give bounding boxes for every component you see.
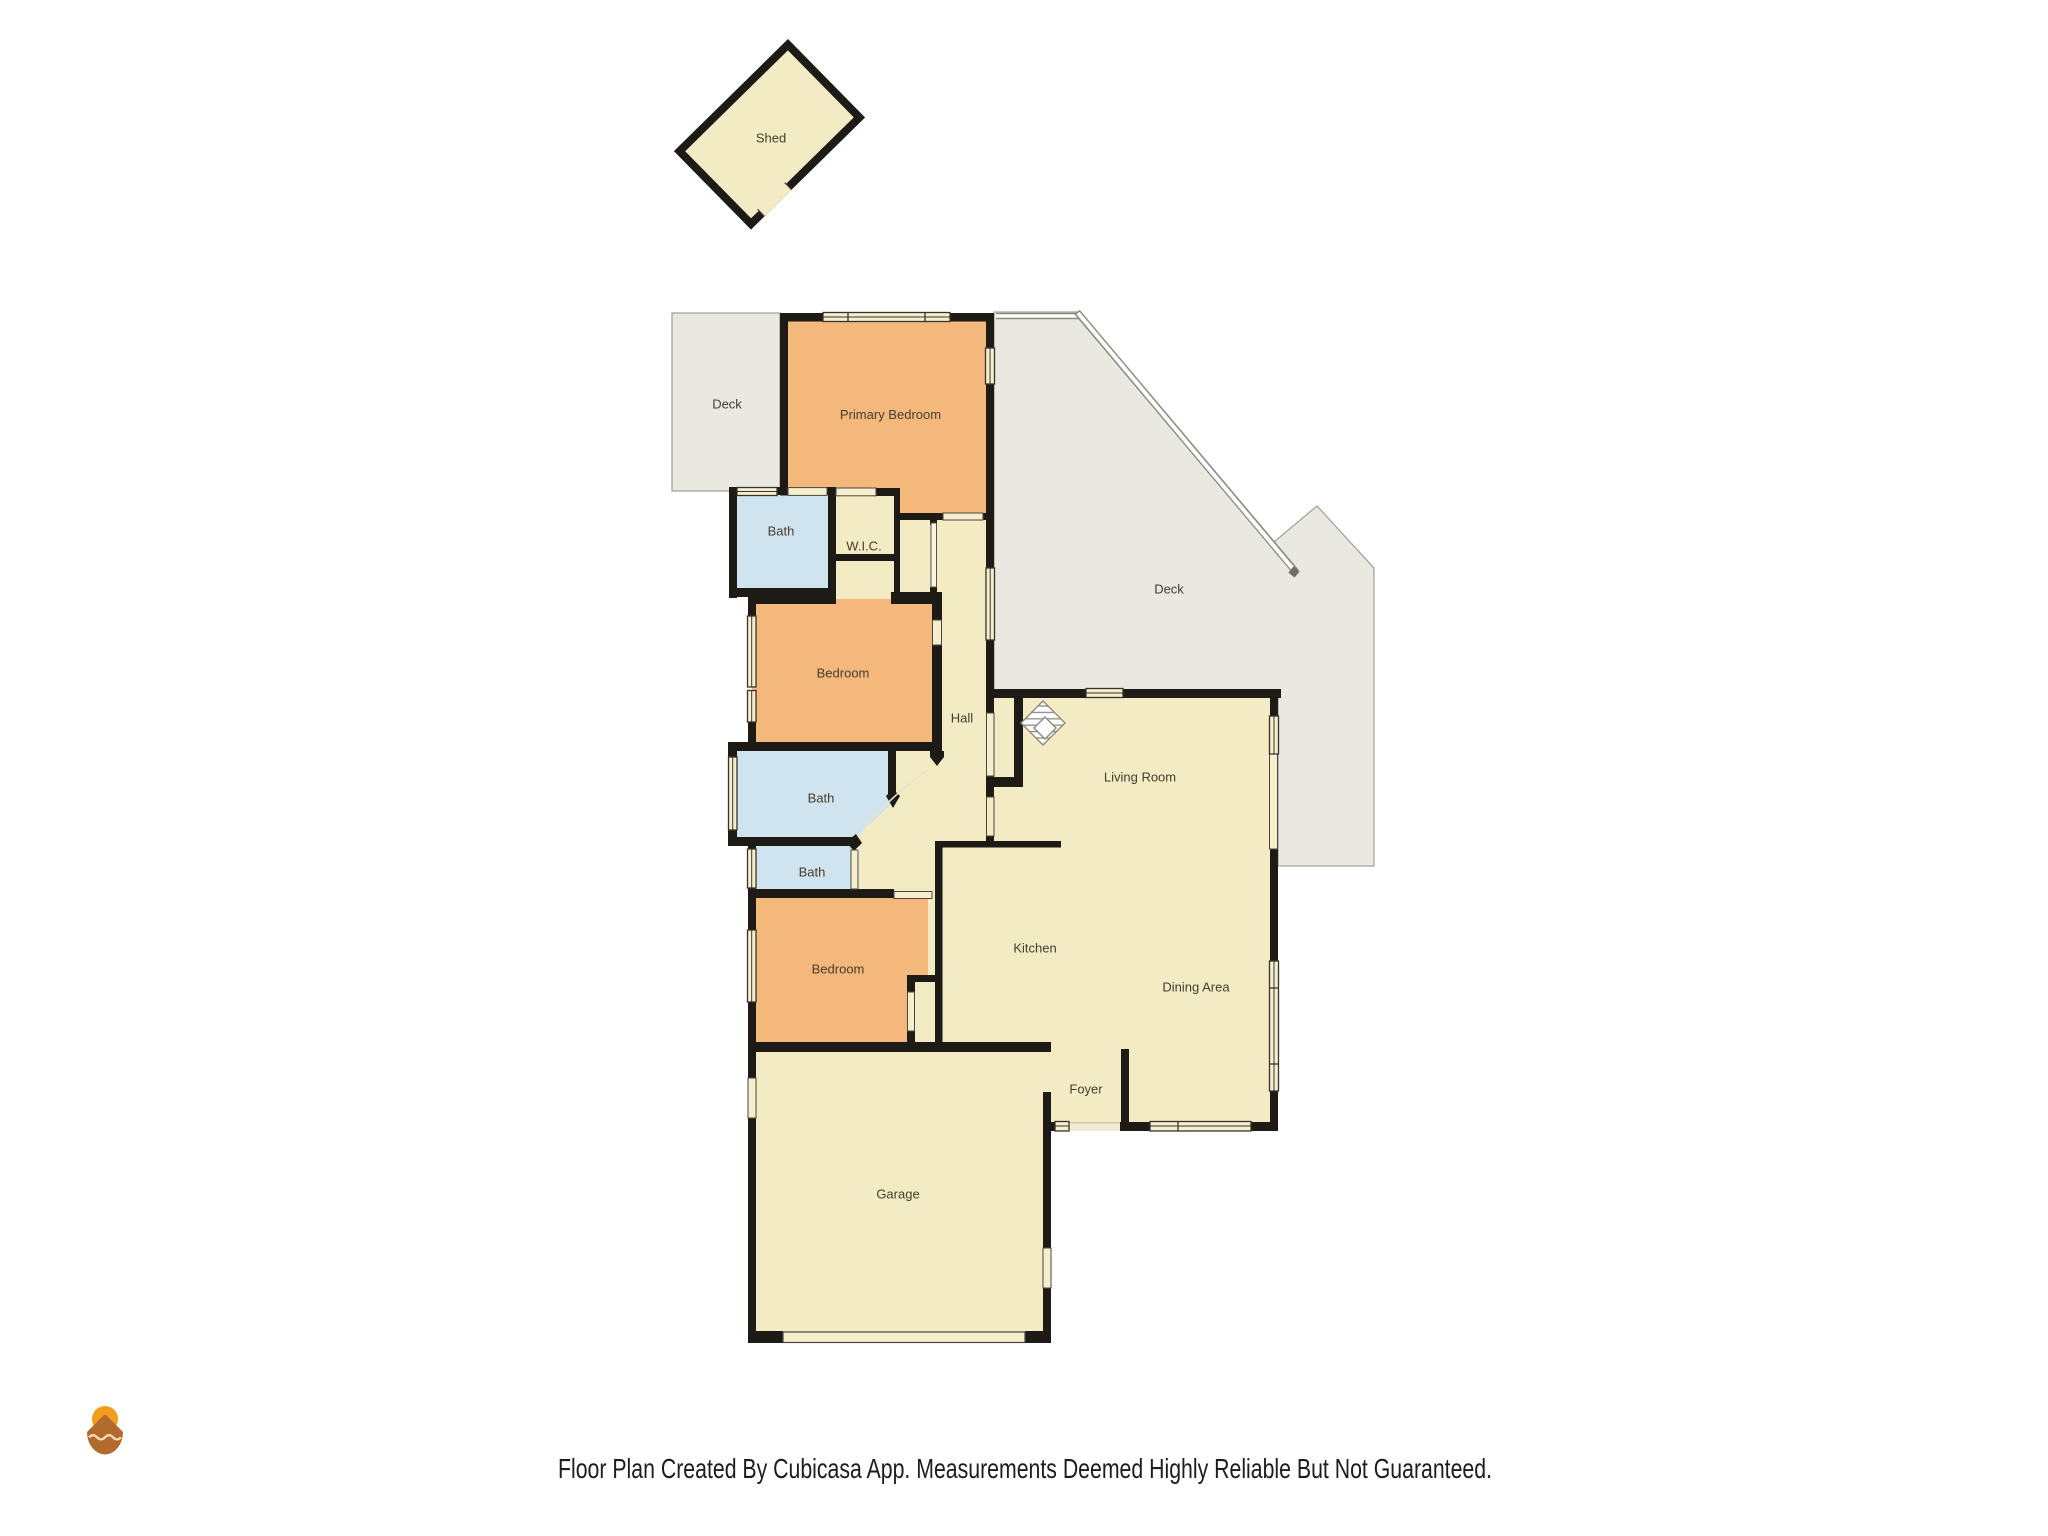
svg-text:Primary Bedroom: Primary Bedroom [840,407,941,422]
svg-text:Dining Area: Dining Area [1162,980,1230,995]
svg-text:Bedroom: Bedroom [812,962,865,977]
svg-text:Garage: Garage [876,1187,919,1202]
svg-text:Bath: Bath [768,524,795,539]
svg-text:Bath: Bath [808,791,835,806]
svg-text:Bath: Bath [799,865,826,880]
svg-text:Deck: Deck [1154,582,1184,597]
svg-text:Floor Plan Created By Cubicasa: Floor Plan Created By Cubicasa App. Meas… [558,1453,1492,1484]
svg-text:Living Room: Living Room [1104,770,1176,785]
svg-text:Bedroom: Bedroom [817,666,870,681]
svg-text:Hall: Hall [951,711,974,726]
svg-text:Shed: Shed [756,131,786,146]
svg-text:Foyer: Foyer [1069,1082,1103,1097]
svg-text:Kitchen: Kitchen [1013,941,1056,956]
svg-text:W.I.C.: W.I.C. [846,539,881,554]
svg-text:Deck: Deck [712,397,742,412]
